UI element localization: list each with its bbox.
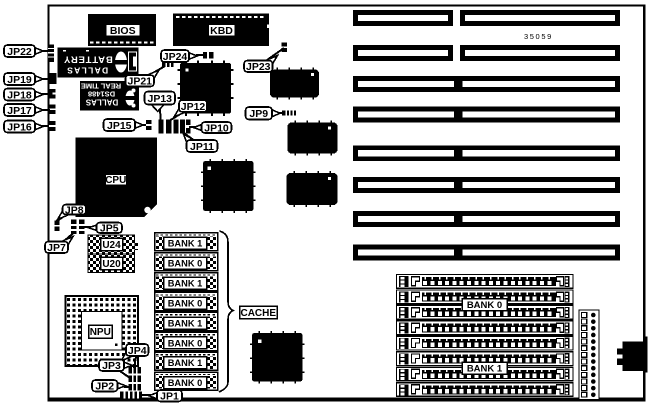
svg-text:NPU: NPU [90,327,111,338]
svg-text:35059: 35059 [524,32,553,41]
svg-text:JP22: JP22 [7,46,32,58]
svg-text:BANK 1: BANK 1 [168,279,203,289]
svg-text:JP11: JP11 [190,141,214,153]
svg-text:JP7: JP7 [47,242,66,254]
svg-text:BANK 1: BANK 1 [467,364,503,375]
svg-text:KBD: KBD [210,25,233,37]
svg-text:BANK 0: BANK 0 [168,259,203,269]
svg-text:CPU: CPU [105,175,126,186]
svg-text:BIOS: BIOS [110,25,136,37]
svg-text:BANK 1: BANK 1 [168,239,203,249]
svg-text:JP21: JP21 [127,76,152,88]
svg-text:BANK 0: BANK 0 [168,298,203,308]
svg-text:BANK 0: BANK 0 [168,378,203,388]
svg-text:JP13: JP13 [147,93,172,105]
svg-text:BATTERY: BATTERY [63,54,112,65]
svg-text:REAL TIME: REAL TIME [81,82,121,91]
svg-text:DALLAS: DALLAS [66,66,108,76]
svg-text:JP15: JP15 [107,120,132,132]
svg-text:JP10: JP10 [204,122,229,134]
svg-text:JP9: JP9 [249,108,268,120]
svg-text:JP8: JP8 [65,204,84,216]
svg-text:JP12: JP12 [181,101,206,113]
svg-text:JP5: JP5 [100,223,119,235]
svg-text:JP16: JP16 [7,121,32,133]
svg-text:JP24: JP24 [163,51,188,63]
svg-text:JP17: JP17 [7,105,32,117]
svg-text:JP4: JP4 [128,345,147,357]
svg-text:BANK 0: BANK 0 [467,300,502,311]
svg-text:CACHE: CACHE [240,308,276,319]
svg-text:JP18: JP18 [7,89,32,101]
svg-text:U24: U24 [102,240,121,251]
svg-text:JP3: JP3 [102,360,121,372]
svg-text:U20: U20 [102,259,121,270]
svg-text:JP19: JP19 [7,74,32,86]
svg-text:BANK 1: BANK 1 [168,318,203,328]
svg-text:JP2: JP2 [95,381,114,393]
svg-text:JP23: JP23 [246,61,271,73]
svg-text:BANK 1: BANK 1 [168,358,203,368]
svg-text:JP1: JP1 [160,391,179,403]
svg-text:BANK 0: BANK 0 [168,338,203,348]
